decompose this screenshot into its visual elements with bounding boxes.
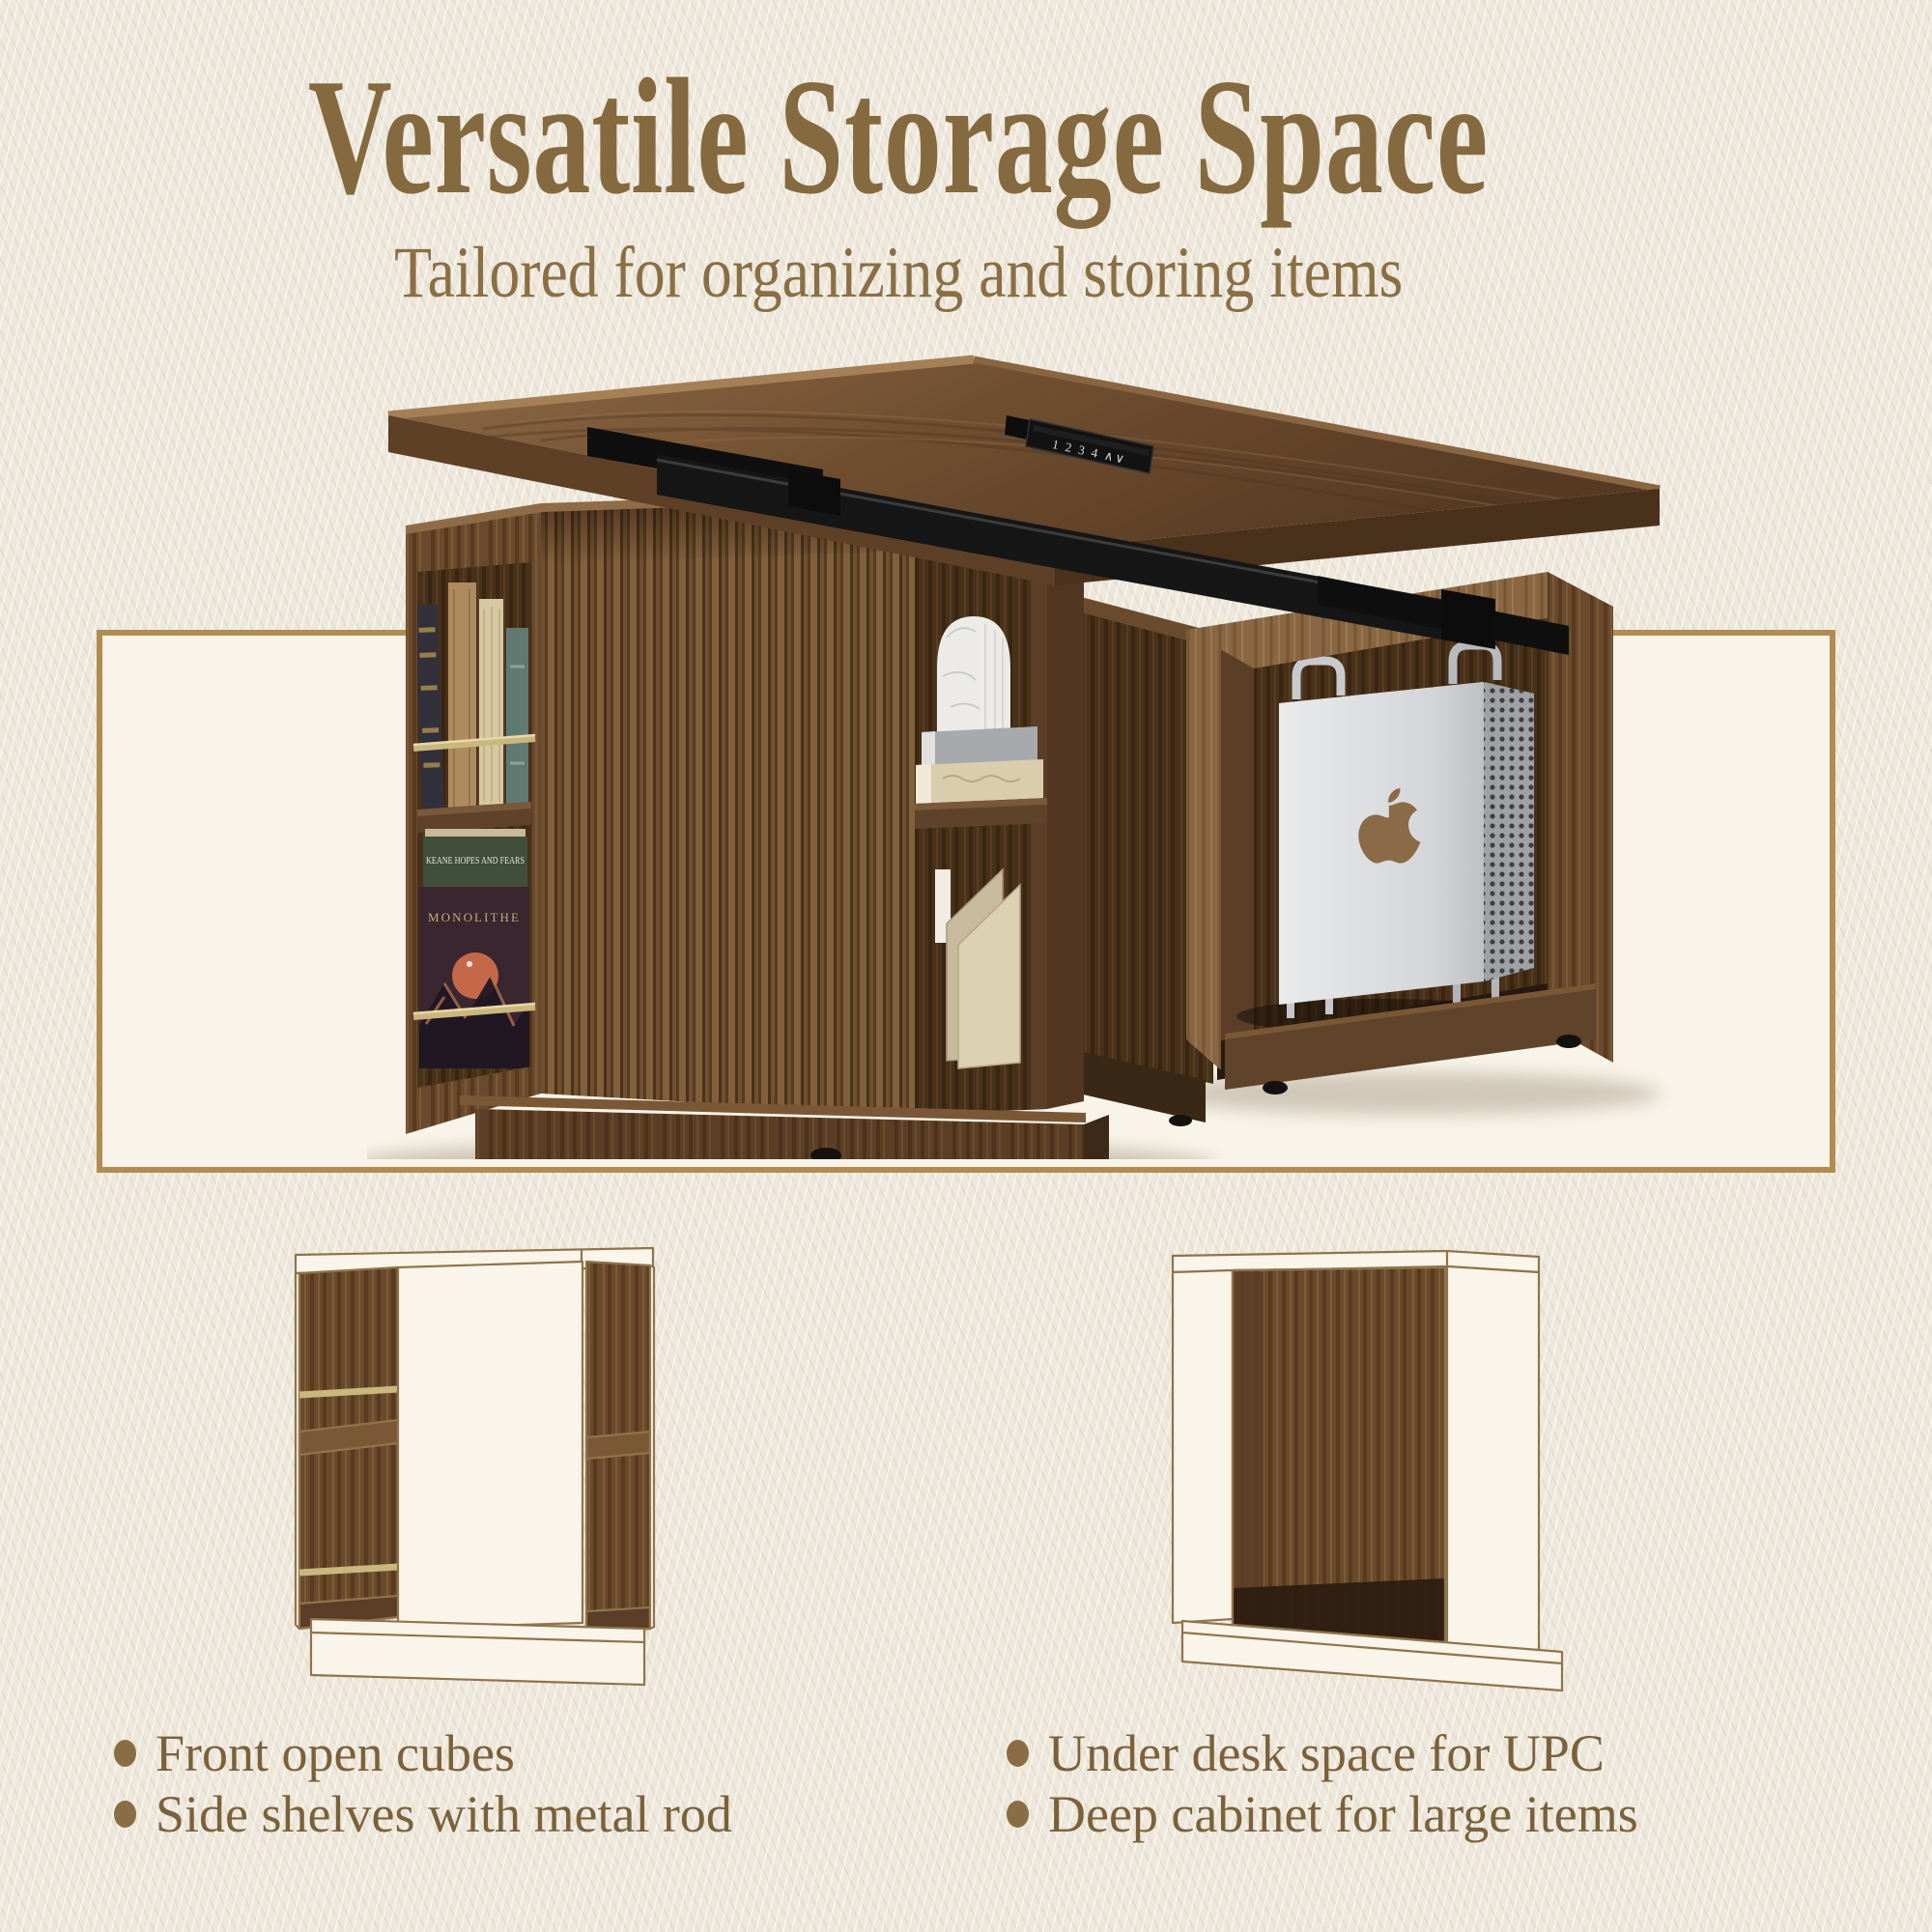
page-subtitle-text: Tailored for organizing and storing item… bbox=[394, 232, 1403, 315]
feature-item: Under desk space for UPC bbox=[1007, 1722, 1638, 1783]
bullet-dot-icon bbox=[1007, 1801, 1029, 1828]
feature-item: Front open cubes bbox=[114, 1722, 732, 1783]
feature-label: Side shelves with metal rod bbox=[156, 1784, 732, 1844]
feature-item: Side shelves with metal rod bbox=[114, 1783, 732, 1844]
page-subtitle: Tailored for organizing and storing item… bbox=[0, 232, 1797, 315]
cabinet-diagram-shelves bbox=[222, 1229, 821, 1698]
page-title: Versatile Storage Space bbox=[0, 50, 1797, 225]
feature-label: Front open cubes bbox=[156, 1723, 515, 1783]
bullet-dot-icon bbox=[1007, 1740, 1029, 1767]
product-infographic-page: Versatile Storage Space Tailored for org… bbox=[0, 0, 1932, 1932]
page-title-text: Versatile Storage Space bbox=[308, 50, 1489, 225]
fluted-front-panel bbox=[541, 493, 915, 1115]
bullet-dot-icon bbox=[114, 1801, 136, 1828]
file-organizers bbox=[935, 869, 1020, 1068]
left-cabinet: KEANE HOPES AND FEARS MONOLITHE bbox=[406, 491, 1109, 1159]
product-photo: KEANE HOPES AND FEARS MONOLITHE bbox=[367, 348, 1671, 1159]
marble-arch-decor bbox=[937, 616, 1010, 732]
bullet-dot-icon bbox=[114, 1740, 136, 1767]
feature-list-left: Front open cubes Side shelves with metal… bbox=[114, 1722, 732, 1844]
cabinet-diagram-deep bbox=[1140, 1229, 1758, 1712]
feature-list-right: Under desk space for UPC Deep cabinet fo… bbox=[1007, 1722, 1638, 1844]
vinyl-front-title: MONOLITHE bbox=[428, 911, 521, 924]
stacked-books bbox=[916, 726, 1043, 810]
vinyl-back-title: KEANE HOPES AND FEARS bbox=[426, 856, 525, 867]
feature-label: Deep cabinet for large items bbox=[1048, 1784, 1638, 1844]
feature-item: Deep cabinet for large items bbox=[1007, 1783, 1638, 1844]
vinyl-records: KEANE HOPES AND FEARS MONOLITHE bbox=[419, 829, 529, 1068]
feature-label: Under desk space for UPC bbox=[1048, 1723, 1605, 1783]
mac-pro bbox=[1279, 645, 1534, 1018]
